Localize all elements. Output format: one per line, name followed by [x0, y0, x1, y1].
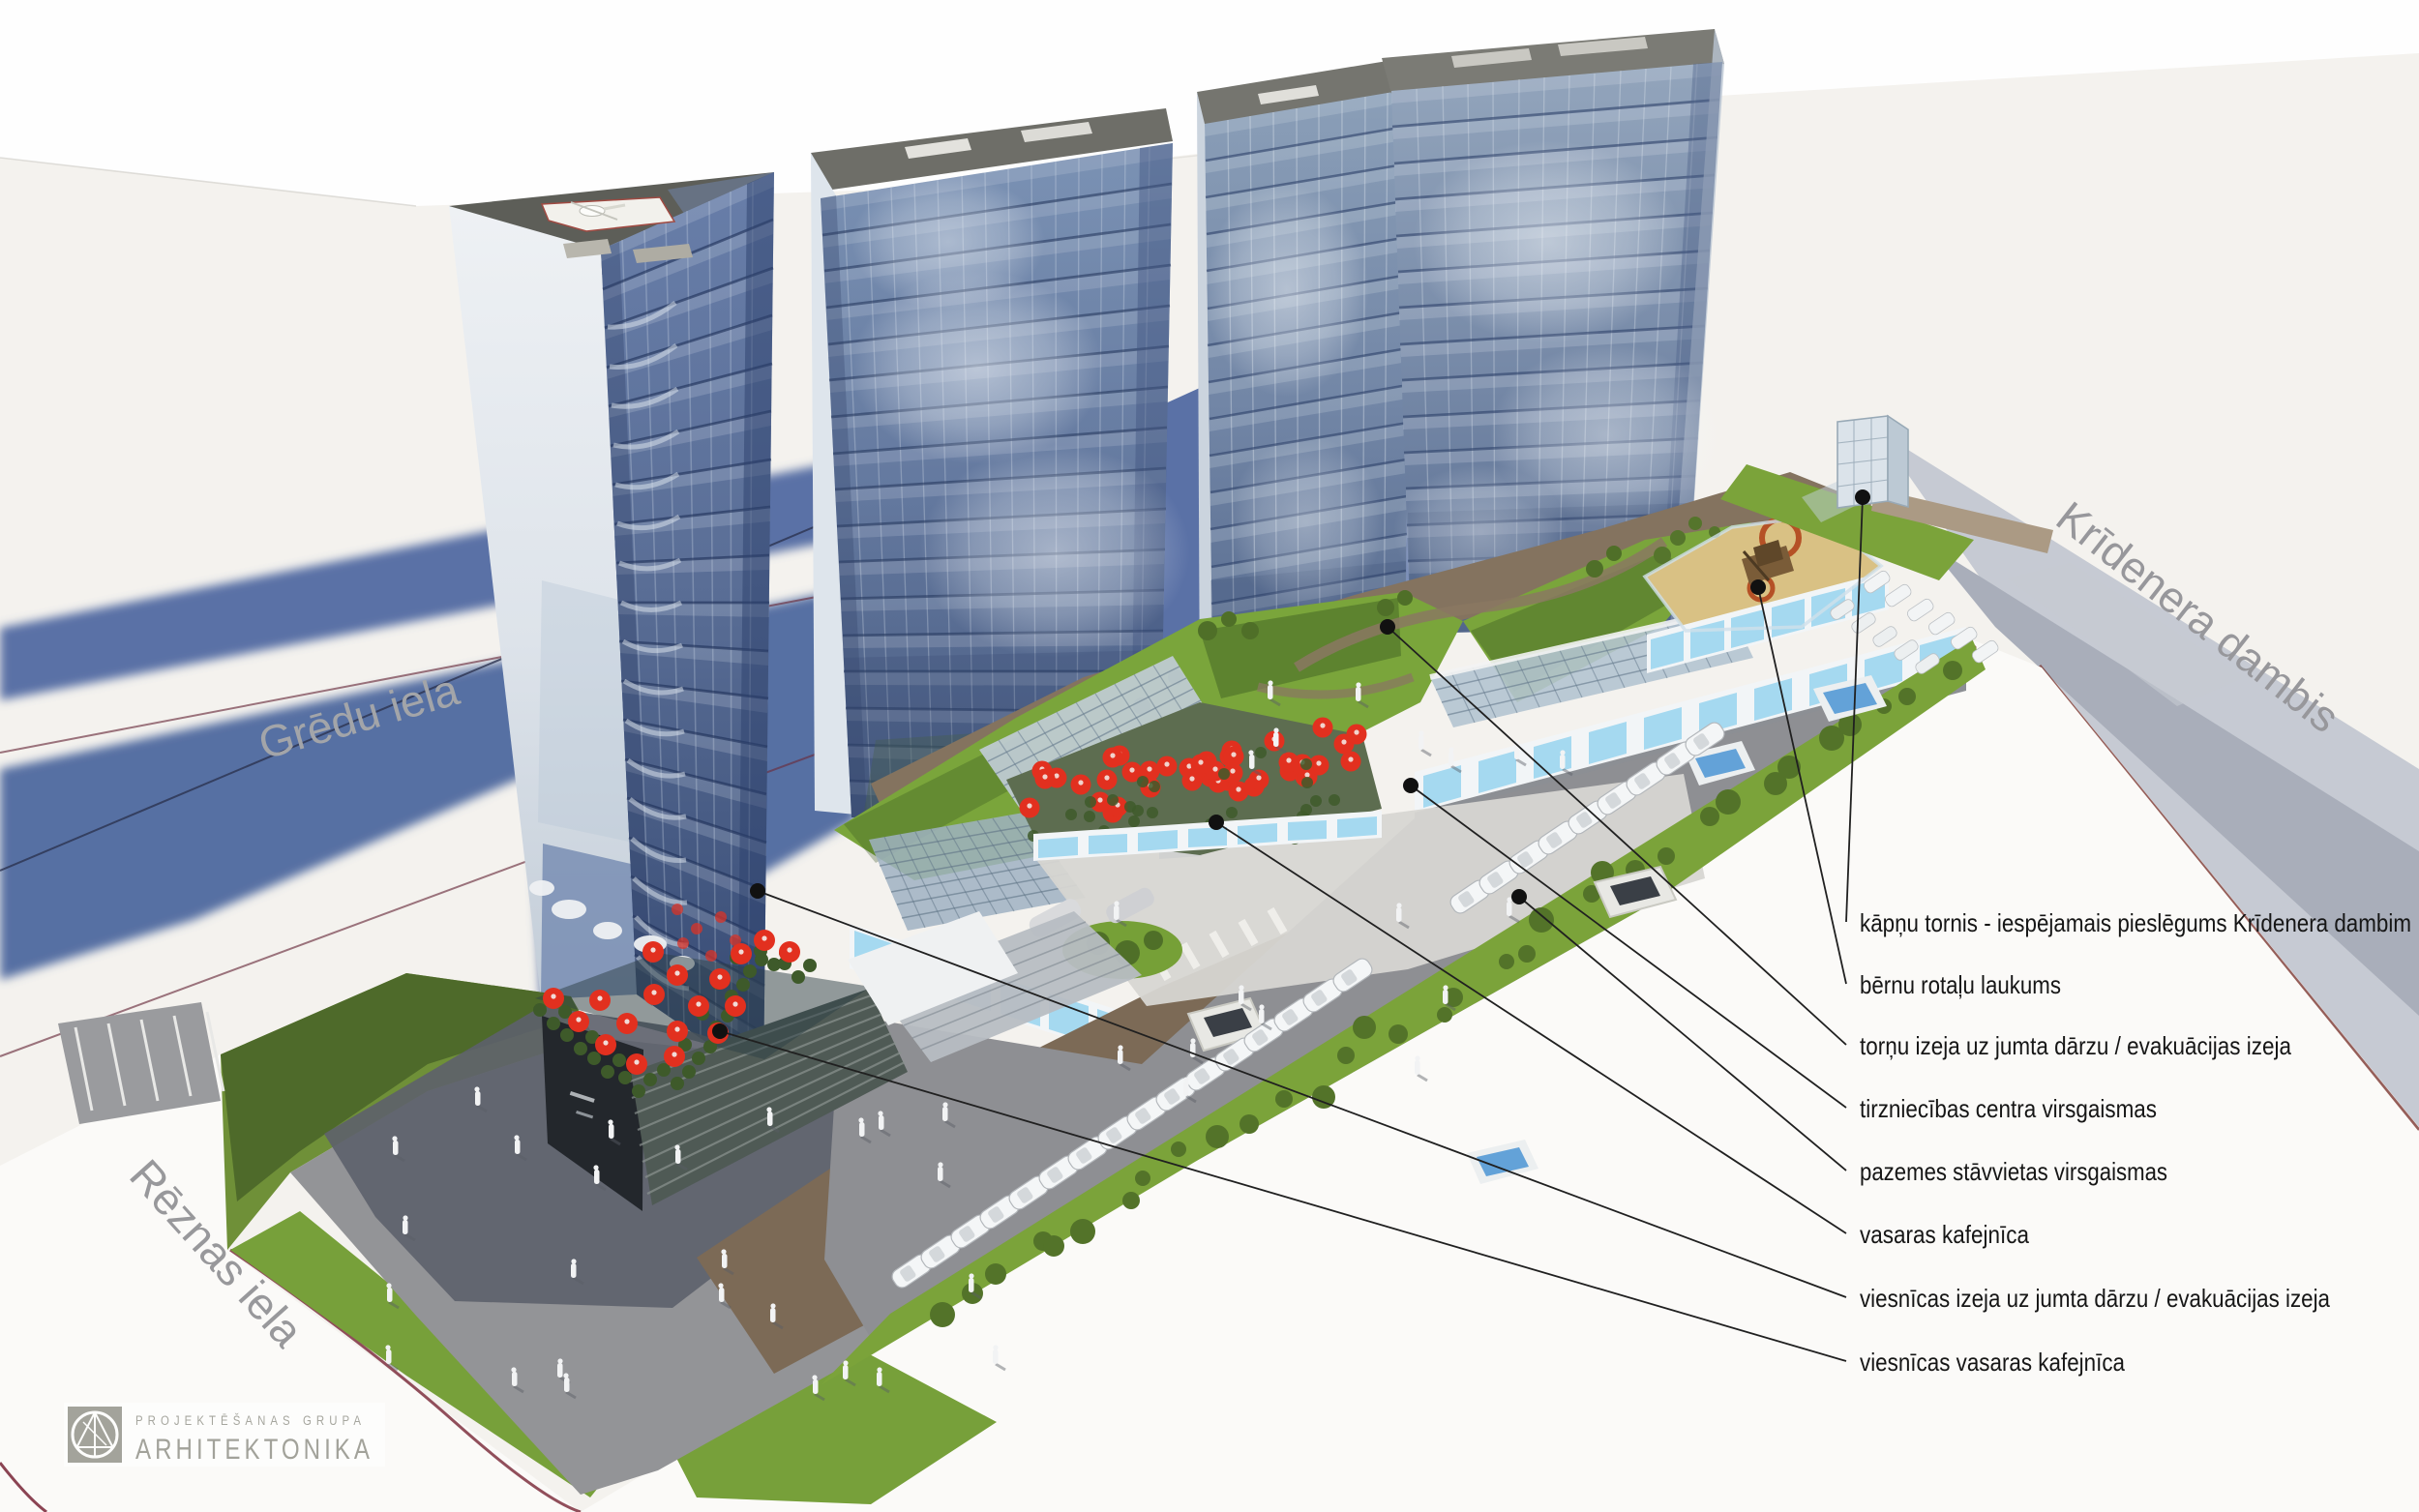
svg-text:bērnu rotaļu laukums: bērnu rotaļu laukums	[1860, 970, 2061, 999]
svg-text:tirzniecības centra virsgaisma: tirzniecības centra virsgaismas	[1860, 1094, 2157, 1123]
svg-text:pazemes stāvvietas virsgaismas: pazemes stāvvietas virsgaismas	[1860, 1157, 2167, 1186]
svg-text:vasaras kafejnīca: vasaras kafejnīca	[1860, 1220, 2029, 1249]
svg-text:viesnīcas izeja uz jumta dārzu: viesnīcas izeja uz jumta dārzu / evakuāc…	[1860, 1284, 2330, 1313]
svg-text:PROJEKTĒŠANAS GRUPA: PROJEKTĒŠANAS GRUPA	[135, 1413, 366, 1428]
svg-text:torņu izeja uz jumta dārzu / e: torņu izeja uz jumta dārzu / evakuācijas…	[1860, 1031, 2291, 1060]
svg-text:viesnīcas vasaras kafejnīca: viesnīcas vasaras kafejnīca	[1860, 1348, 2125, 1377]
svg-text:kāpņu tornis - iespējamais pie: kāpņu tornis - iespējamais pieslēgums Kr…	[1860, 908, 2411, 937]
svg-text:ARHITEKTONIKA: ARHITEKTONIKA	[135, 1434, 373, 1466]
